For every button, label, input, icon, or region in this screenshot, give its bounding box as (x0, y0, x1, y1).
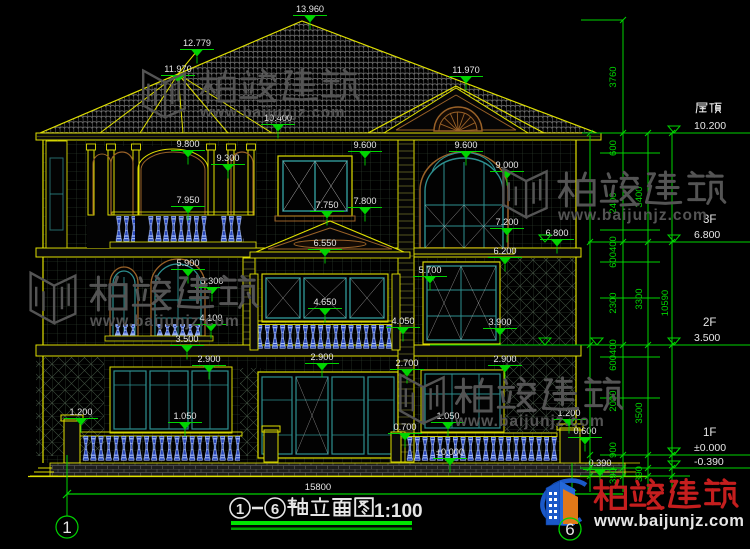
svg-text:7.800: 7.800 (354, 196, 377, 206)
svg-text:7.950: 7.950 (177, 195, 200, 205)
svg-text:2300: 2300 (608, 292, 619, 313)
svg-text:www.baijunjz.com: www.baijunjz.com (89, 313, 240, 330)
svg-text:-0.390: -0.390 (694, 456, 724, 468)
svg-text:1.050: 1.050 (174, 411, 197, 421)
svg-text:9.600: 9.600 (354, 140, 377, 150)
svg-text:www.baijunjz.com: www.baijunjz.com (593, 512, 744, 530)
svg-text:1.200: 1.200 (70, 407, 93, 417)
svg-text:4.650: 4.650 (314, 297, 337, 307)
svg-text:2F: 2F (703, 317, 716, 329)
svg-text:6.200: 6.200 (494, 246, 517, 256)
svg-text:1F: 1F (703, 427, 716, 439)
svg-text:5.900: 5.900 (177, 258, 200, 268)
svg-text:9.800: 9.800 (177, 139, 200, 149)
svg-text:6.800: 6.800 (694, 229, 720, 241)
svg-text:3.500: 3.500 (176, 334, 199, 344)
svg-text:6: 6 (271, 501, 279, 518)
svg-text:2.700: 2.700 (396, 358, 419, 368)
svg-text:1: 1 (236, 501, 244, 518)
svg-text:10.200: 10.200 (694, 120, 726, 132)
svg-text:2.900: 2.900 (494, 354, 517, 364)
svg-text:9.300: 9.300 (217, 153, 240, 163)
svg-text:2.900: 2.900 (198, 354, 221, 364)
svg-text:6.800: 6.800 (546, 228, 569, 238)
svg-text:5.700: 5.700 (419, 265, 442, 275)
svg-text:13.960: 13.960 (296, 4, 324, 14)
svg-text:6: 6 (565, 520, 574, 539)
svg-text:600: 600 (608, 140, 619, 156)
svg-text:www.baijunjz.com: www.baijunjz.com (199, 104, 345, 121)
svg-text:3500: 3500 (634, 402, 645, 423)
svg-text:900: 900 (608, 442, 619, 458)
svg-text:7.750: 7.750 (316, 200, 339, 210)
svg-text:9.000: 9.000 (496, 160, 519, 170)
svg-text:11.970: 11.970 (164, 64, 191, 74)
svg-text:9.600: 9.600 (455, 140, 478, 150)
svg-text:±0.000: ±0.000 (694, 442, 726, 454)
svg-text:11.970: 11.970 (452, 65, 479, 75)
svg-text:2.900: 2.900 (311, 352, 334, 362)
svg-text:www.baijunjz.com: www.baijunjz.com (454, 413, 605, 430)
svg-text:10590: 10590 (660, 290, 671, 316)
svg-text:600400: 600400 (608, 236, 619, 268)
svg-text:390: 390 (634, 466, 645, 482)
svg-text:12.779: 12.779 (183, 38, 211, 48)
svg-text:1:100: 1:100 (374, 501, 423, 522)
svg-text:0.700: 0.700 (394, 422, 417, 432)
svg-text:15800: 15800 (305, 482, 331, 493)
svg-text:3.900: 3.900 (489, 317, 512, 327)
svg-text:3300: 3300 (634, 288, 645, 309)
svg-text:±0.000: ±0.000 (436, 447, 464, 457)
svg-text:6.550: 6.550 (314, 238, 337, 248)
svg-text:600400: 600400 (608, 339, 619, 371)
svg-text:7.200: 7.200 (496, 217, 519, 227)
svg-text:www.baijunjz.com: www.baijunjz.com (557, 207, 708, 224)
svg-text:1: 1 (62, 518, 71, 537)
svg-text:3760: 3760 (608, 66, 619, 87)
svg-text:3.500: 3.500 (694, 332, 720, 344)
svg-text:4.050: 4.050 (392, 316, 415, 326)
